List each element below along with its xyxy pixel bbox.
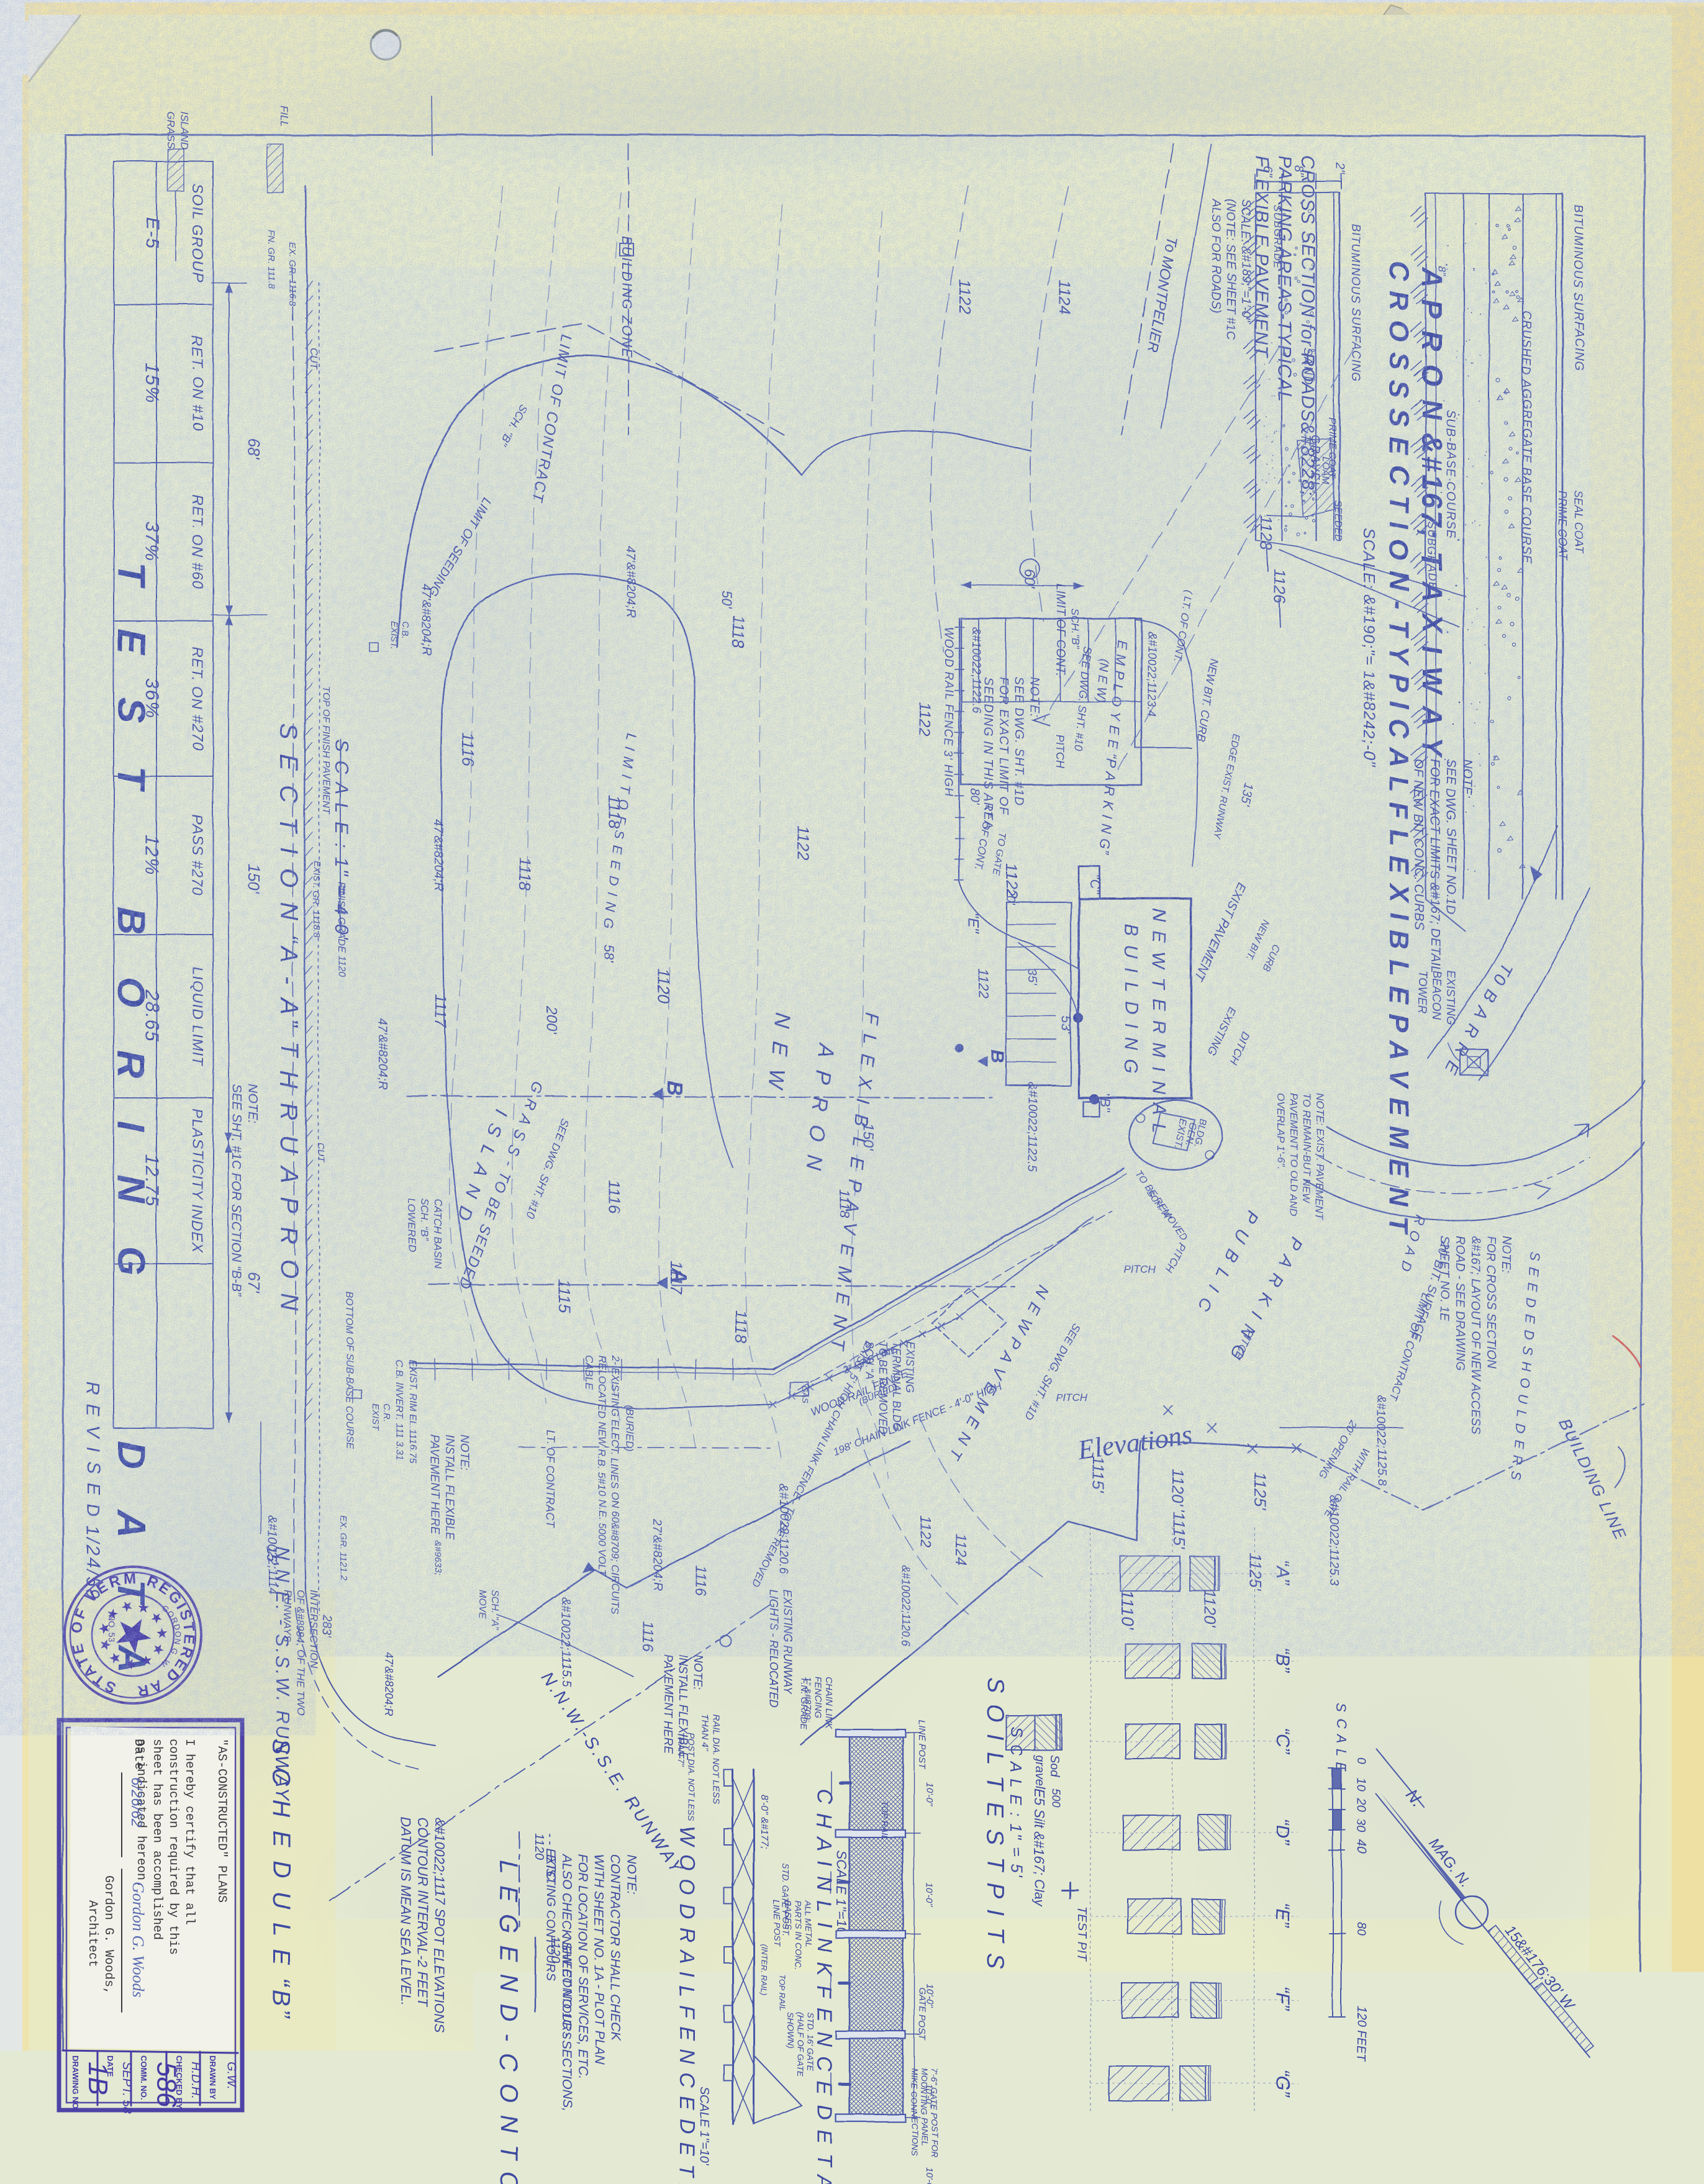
svg-text:10'-0": 10'-0" xyxy=(924,2167,935,2184)
